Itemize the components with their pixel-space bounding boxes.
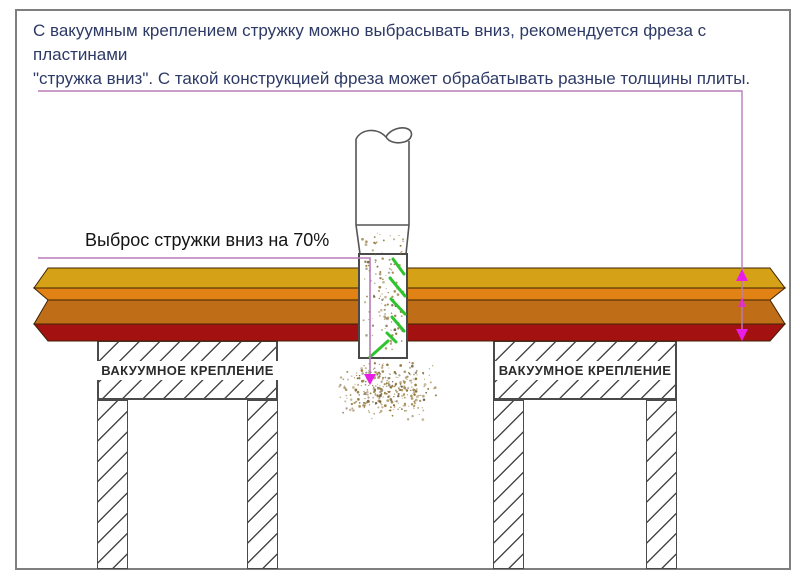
vacuum-clamp-block: ВАКУУМНОЕ КРЕПЛЕНИЕ: [97, 340, 278, 400]
vacuum-clamp-block: ВАКУУМНОЕ КРЕПЛЕНИЕ: [493, 340, 677, 400]
support-leg: [247, 400, 278, 569]
support-leg: [646, 400, 677, 569]
intro-text: С вакуумным креплением стружку можно выб…: [33, 19, 778, 91]
chip-discharge-label: Выброс стружки вниз на 70%: [85, 230, 329, 251]
intro-line-1: С вакуумным креплением стружку можно выб…: [33, 19, 778, 67]
support-leg: [493, 400, 524, 569]
vacuum-clamp-label: ВАКУУМНОЕ КРЕПЛЕНИЕ: [495, 361, 676, 380]
support-leg: [97, 400, 128, 569]
vacuum-clamp-label: ВАКУУМНОЕ КРЕПЛЕНИЕ: [97, 361, 278, 380]
diagram-canvas: С вакуумным креплением стружку можно выб…: [0, 0, 800, 576]
intro-line-2: "стружка вниз". С такой конструкцией фре…: [33, 67, 778, 91]
